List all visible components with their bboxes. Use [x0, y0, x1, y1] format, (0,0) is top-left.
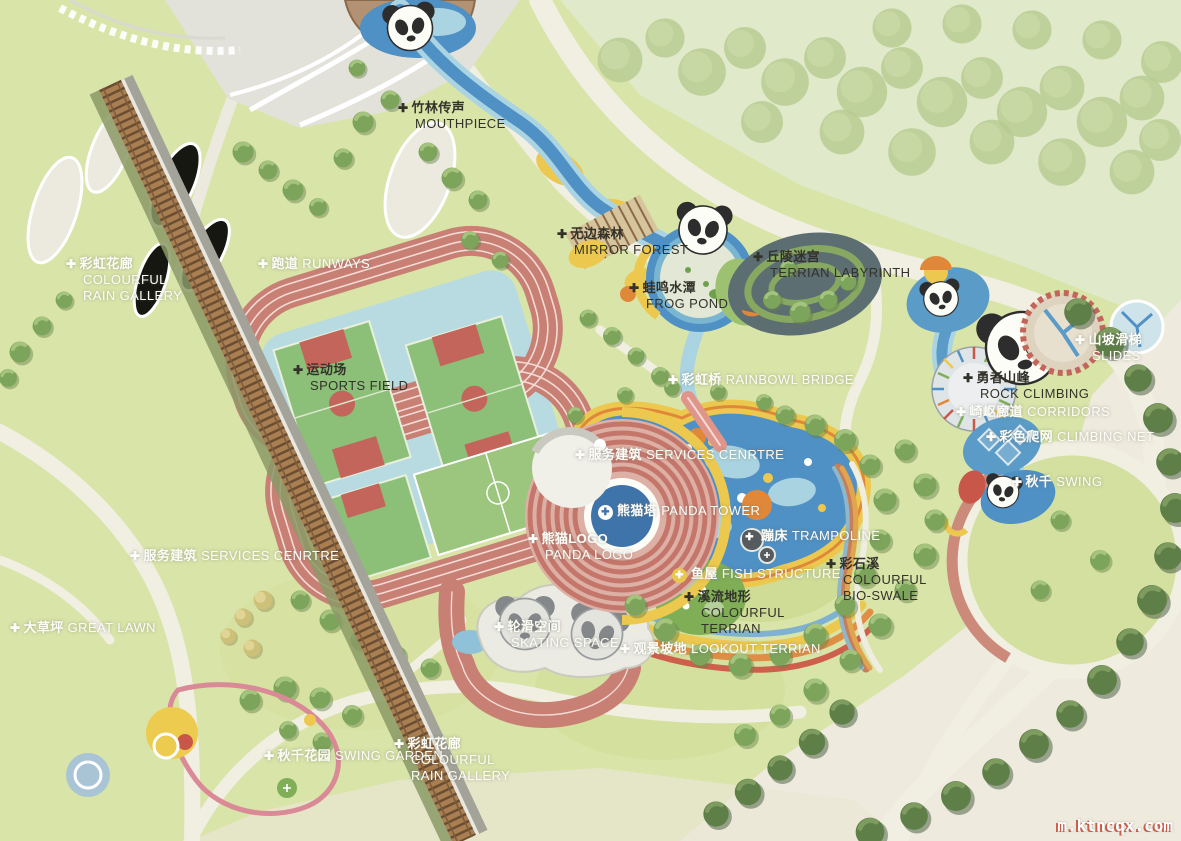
watermark: m.ktncqx.com	[1057, 816, 1173, 835]
label-frog-pond: ✚蛙鸣水潭 FROG POND	[629, 280, 728, 312]
plus-marker-icon: ✚	[672, 568, 687, 583]
plus-marker-icon: ✚	[1075, 333, 1085, 348]
plus-marker-icon: ✚	[598, 505, 613, 520]
plus-marker-icon: ✚	[620, 642, 630, 657]
plus-marker-icon: ✚	[394, 737, 404, 752]
plus-marker-icon: ✚	[557, 227, 567, 242]
plus-marker-icon: ✚	[264, 749, 274, 764]
label-lookout-terrian: ✚观景坡地LOOKOUT TERRIAN	[620, 641, 821, 657]
label-mirror-forest: ✚无边森林 MIRROR FOREST	[557, 226, 688, 258]
plus-marker-icon: ✚	[963, 371, 973, 386]
plus-marker-icon: ✚	[629, 281, 639, 296]
label-colourful-terrian: ✚溪流地形 COLOURFUL TERRIAN	[684, 589, 785, 637]
label-trampoline: ✚蹦床TRAMPOLINE	[742, 528, 880, 545]
label-rain-gallery-bottom: ✚彩虹花廊 COLOURFUL RAIN GALLERY	[394, 736, 510, 784]
label-fish-structure: ✚鱼屋FISH STRUCTURE	[672, 566, 841, 583]
label-swing: ✚秋千SWING	[1012, 474, 1102, 490]
label-services-centre: ✚服务建筑SERVICES CENRTRE	[575, 447, 784, 463]
label-skating: ✚轮滑空间 SKATING SPACE	[494, 619, 619, 651]
plus-marker-icon: ✚	[742, 530, 757, 545]
label-mouthpiece: ✚竹林传声 MOUTHPIECE	[398, 100, 506, 132]
plus-marker-icon: ✚	[986, 430, 996, 445]
label-rock-climbing: ✚勇者山峰 ROCK CLIMBING	[963, 370, 1089, 402]
plus-marker-icon: ✚	[575, 448, 585, 463]
plus-marker-icon: ✚	[130, 549, 140, 564]
plus-marker-icon: ✚	[494, 620, 504, 635]
label-rainbowl-bridge: ✚彩虹桥RAINBOWL BRIDGE	[668, 372, 854, 388]
label-terrian-labyrinth: ✚丘陵迷宫 TERRIAN LABYRINTH	[753, 249, 910, 281]
plus-marker-icon: ✚	[398, 101, 408, 116]
label-sports-field: ✚运动场 SPORTS FIELD	[293, 362, 408, 394]
label-rain-gallery-top: ✚彩虹花廊 COLOURFUL RAIN GALLERY	[66, 256, 182, 304]
park-masterplan-map: ✚竹林传声 MOUTHPIECE ✚无边森林 MIRROR FOREST ✚蛙鸣…	[0, 0, 1181, 841]
plus-marker-icon: ✚	[956, 405, 966, 420]
label-climbing-net: ✚彩色爬网CLIMBING NET	[986, 429, 1154, 445]
plus-marker-icon: ✚	[10, 621, 20, 636]
plus-marker-icon: ✚	[753, 250, 763, 265]
plus-marker-icon: ✚	[258, 257, 268, 272]
plus-marker-icon: ✚	[684, 590, 694, 605]
plus-marker-icon: ✚	[1012, 475, 1022, 490]
label-panda-logo: ✚熊猫LOGO PANDA LOGO	[528, 531, 633, 563]
label-panda-tower: ✚熊猫塔PANDA TOWER	[598, 503, 760, 520]
label-corridors: ✚崎岖廊道CORRIDORS	[956, 404, 1110, 420]
label-bio-swale: ✚彩石溪 COLOURFUL BIO-SWALE	[826, 556, 927, 604]
plus-marker-icon: ✚	[826, 557, 836, 572]
plus-marker-icon: ✚	[66, 257, 76, 272]
label-slides: ✚山坡滑梯 SLIDES	[1075, 332, 1142, 364]
plus-marker-icon: ✚	[668, 373, 678, 388]
services-centre-building	[532, 428, 612, 508]
label-runways: ✚跑道RUNWAYS	[258, 256, 370, 272]
label-services-centre-left: ✚服务建筑SERVICES CENRTRE	[130, 548, 339, 564]
masterplan-drawing	[0, 0, 1181, 841]
plus-marker-icon: ✚	[293, 363, 303, 378]
plus-marker-icon: ✚	[528, 532, 538, 547]
label-great-lawn: ✚大草坪GREAT LAWN	[10, 620, 156, 636]
